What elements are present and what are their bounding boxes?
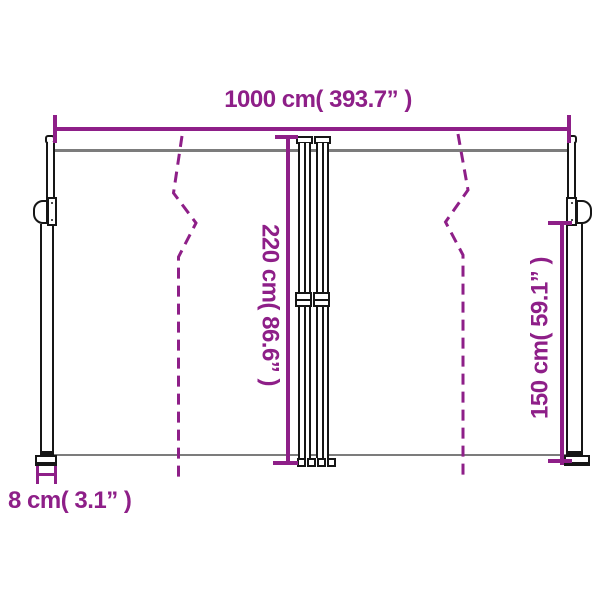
left-pole-handle-plate [47,197,57,226]
connector-bar [315,299,328,301]
front-height-dimension-line [560,223,564,465]
center-post-connector-left [295,292,312,307]
center-post-foot [297,458,306,467]
connector-bar [297,299,310,301]
center-post-foot [307,458,316,467]
back-height-tick-bottom [273,461,298,465]
center-post-connector-right [313,292,330,307]
front-height-dimension-label: 150 cm( 59.1” ) [527,257,552,419]
screw-dot [51,219,53,221]
center-post-foot [327,458,336,467]
right-pole-handle-loop [576,200,592,224]
back-height-dimension-label: 220 cm( 86.6” ) [257,224,282,386]
back-height-tick-top [275,135,298,139]
back-height-dimension-line [286,137,290,465]
fold-indicator-right-dashed [446,134,469,476]
screw-dot [51,202,53,204]
width-dimension-line [55,127,569,131]
front-height-tick-bottom [548,459,572,463]
pole-depth-dimension-label: 8 cm( 3.1” ) [8,488,131,513]
pole-depth-dimension-line [36,473,57,476]
center-post-foot [317,458,326,467]
front-height-tick-top [548,221,572,225]
width-dimension-tick-right [567,115,571,143]
screw-dot [571,202,573,204]
left-pole-handle-loop [33,200,48,224]
width-dimension-label: 1000 cm( 393.7” ) [224,87,412,112]
right-pole-lower-tube [566,224,583,455]
fold-indicator-left-dashed [174,136,197,478]
left-pole-foot [35,455,57,466]
awning-dimension-diagram: 1000 cm( 393.7” ) 220 cm( 86.6” ) 150 cm… [0,0,600,600]
left-pole-lower-tube [40,224,54,455]
width-dimension-tick-left [53,115,57,143]
